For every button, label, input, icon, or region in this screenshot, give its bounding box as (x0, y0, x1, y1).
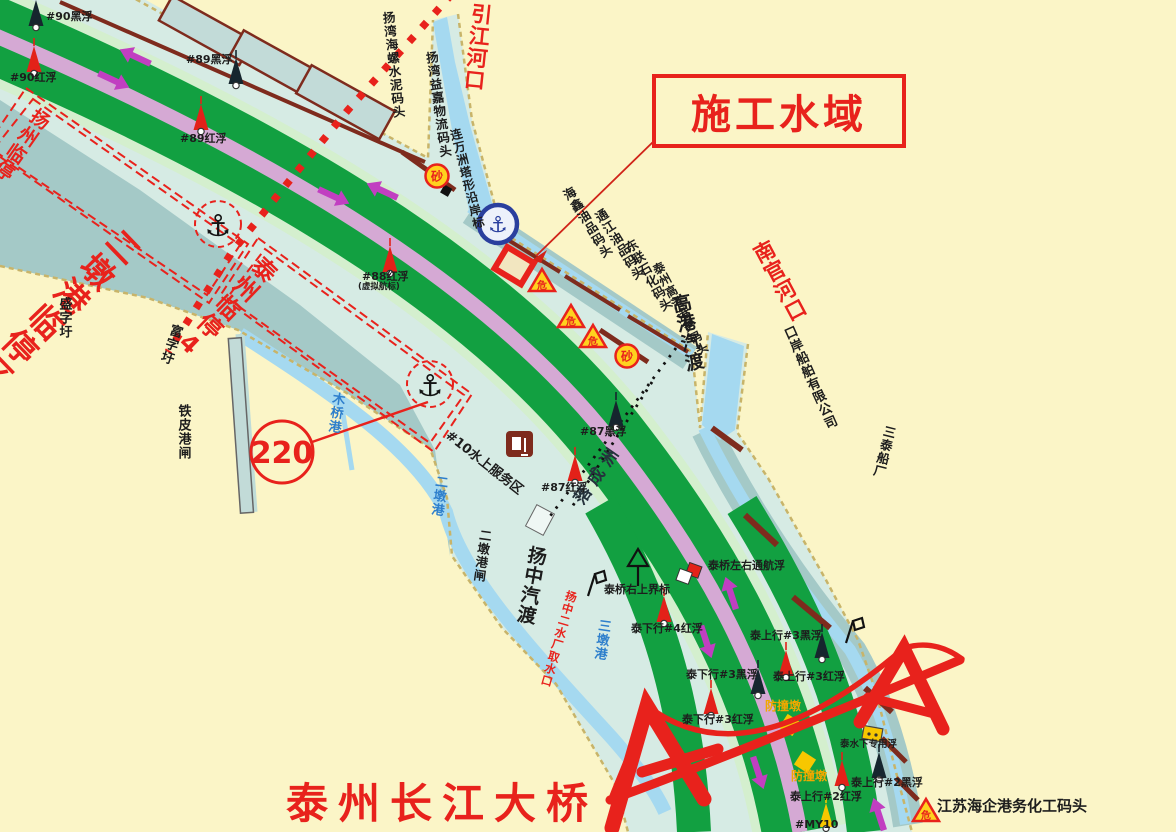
special-buoy-label: 泰水下专用浮 (840, 740, 897, 750)
buoy-label-tx4-red: 泰下行#4红浮 (631, 623, 703, 634)
dock-hailuo: 扬湾海螺水泥码头 (381, 11, 405, 120)
qiao-nav-buoy-label: 泰桥左右通航浮 (708, 560, 785, 571)
dock-yijia: 扬湾益嘉物流码头 (424, 50, 452, 159)
qiao-right-mark-label: 泰桥右上界标 (604, 584, 670, 595)
service-area-label: #10水上服务区 (443, 429, 525, 498)
buoy-label-89-black: #89黑浮 (186, 54, 233, 65)
tiepi-label: 铁皮港闸 (176, 404, 190, 460)
buoy-label-90-black: #90黑浮 (46, 11, 93, 22)
zone-erdungang-linting: 二墩港临停区 (0, 220, 146, 395)
shengzi-label: 盛字圩 (57, 297, 71, 339)
muqiao-label: 木桥港 (325, 391, 344, 434)
label-layer: 扬州临停1 二墩港临停区 泰州临停4 施工水域 泰州长江大桥 引江河口 南官河口… (0, 0, 1176, 832)
buoy-label-tx3-red: 泰下行#3红浮 (682, 714, 754, 725)
pier-label-2: 防撞墩 (791, 770, 827, 782)
buoy-label-87-black: #87黑浮 (580, 426, 627, 437)
bridge-title: 泰州长江大桥 (286, 770, 598, 831)
buoy-label-my10: #MY10 (795, 819, 838, 830)
zone-yangzhou-linting: 扬州临停1 (0, 104, 52, 204)
buoy-label-ts2-red: 泰上行#2红浮 (790, 791, 862, 802)
buoy-label-89-red: #89红浮 (180, 133, 227, 144)
buoy-label-90-red: #90红浮 (10, 72, 57, 83)
haiqi-dock-label: 江苏海企港务化工码头 (937, 799, 1087, 815)
erdun-zha-label: 二墩港闸 (471, 528, 491, 583)
buoy-label-ts3-red: 泰上行#3红浮 (773, 671, 845, 682)
construction-zone-label: 施工水域 (652, 74, 906, 148)
buoy-label-87-red: #87红浮 (541, 482, 588, 493)
pier-label-1: 防撞墩 (765, 700, 801, 712)
erdun-label: 二墩港 (428, 474, 447, 517)
zone-taizhou-linting: 泰州临停4 (169, 250, 280, 364)
nanguan-river-label: 南官河口 (748, 238, 809, 326)
buoy-label-ts2-black: 泰上行#2黑浮 (851, 777, 923, 788)
santai-shipyard-label: 三泰船厂 (871, 424, 897, 480)
buoy-label-88-note: (虚拟航标) (358, 283, 400, 292)
kouan-shipyard-label: 口岸船舶有限公司 (780, 325, 838, 433)
luochengzhou-label: 落成洲 (572, 441, 626, 508)
buoy-label-ts3-black: 泰上行#3黑浮 (750, 630, 822, 641)
nautical-chart: ⚓ ⚓ 220 ⚓ 砂 砂 危 危 危 危 (0, 0, 1176, 832)
beacon-lianwanzhou: 连万洲塔形沿岸标 (448, 127, 485, 231)
buoy-label-88-red: #88红浮 (362, 271, 409, 282)
yinjiang-river-label: 引江河口 (461, 2, 492, 92)
qushuikou-label: 扬中二水厂取水口 (538, 589, 577, 688)
yangzhong-ferry-label: 扬中汽渡 (513, 544, 546, 626)
buoy-label-tx3-black: 泰下行#3黑浮 (686, 669, 758, 680)
sandun-label: 三墩港 (591, 618, 610, 661)
